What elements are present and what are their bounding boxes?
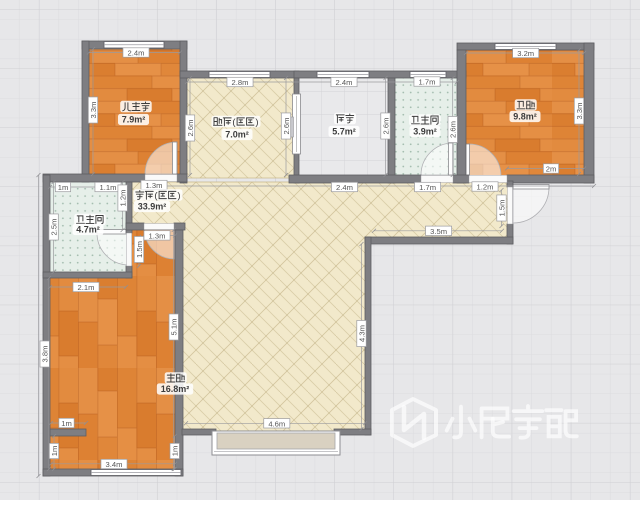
svg-text:1.3m: 1.3m [149, 231, 166, 240]
svg-text:1.2m: 1.2m [119, 190, 128, 207]
svg-text:5.7m²: 5.7m² [332, 127, 356, 137]
svg-text:5.1m: 5.1m [170, 319, 179, 336]
svg-text:2.6m: 2.6m [186, 120, 195, 137]
svg-text:2.5m: 2.5m [50, 219, 59, 236]
svg-text:4.7m²: 4.7m² [76, 225, 100, 235]
svg-text:1.7m: 1.7m [419, 78, 436, 87]
svg-text:2.6m: 2.6m [449, 121, 458, 138]
svg-text:): ) [177, 190, 180, 201]
svg-text:3.4m: 3.4m [106, 460, 123, 469]
svg-text:16.8m²: 16.8m² [161, 384, 190, 394]
svg-text:1m: 1m [61, 419, 72, 428]
svg-text:1.1m: 1.1m [100, 183, 117, 192]
svg-text:1.2m: 1.2m [477, 183, 494, 192]
svg-text:33.9m²: 33.9m² [138, 202, 167, 212]
svg-text:1m: 1m [171, 446, 180, 457]
svg-text:9.8m²: 9.8m² [513, 112, 537, 122]
svg-text:1.7m: 1.7m [419, 183, 436, 192]
svg-text:3.3m: 3.3m [575, 103, 584, 120]
svg-text:2.4m: 2.4m [336, 78, 353, 87]
svg-text:1m: 1m [50, 446, 59, 457]
svg-text:3.5m: 3.5m [430, 227, 447, 236]
svg-text:2m: 2m [546, 165, 557, 174]
svg-text:3.8m: 3.8m [41, 346, 50, 363]
svg-text:1.5m: 1.5m [498, 200, 507, 217]
svg-text:3.3m: 3.3m [89, 102, 98, 119]
svg-text:3.9m²: 3.9m² [413, 127, 437, 137]
svg-text:1.5m: 1.5m [135, 241, 144, 258]
svg-text:3.2m: 3.2m [517, 49, 534, 58]
svg-text:1m: 1m [58, 183, 69, 192]
svg-text:2.4m: 2.4m [336, 183, 353, 192]
svg-text:7.9m²: 7.9m² [122, 115, 146, 125]
svg-text:4.6m: 4.6m [268, 419, 285, 428]
svg-text:2.6m: 2.6m [282, 118, 291, 135]
svg-text:1.3m: 1.3m [146, 181, 163, 190]
svg-text:2.8m: 2.8m [232, 78, 249, 87]
svg-text:2.4m: 2.4m [128, 49, 145, 58]
svg-text:2.6m: 2.6m [382, 118, 391, 135]
svg-text:4.3m: 4.3m [358, 325, 367, 342]
svg-text:7.0m²: 7.0m² [225, 130, 249, 140]
svg-text:): ) [255, 117, 258, 128]
svg-text:2.1m: 2.1m [78, 283, 95, 292]
